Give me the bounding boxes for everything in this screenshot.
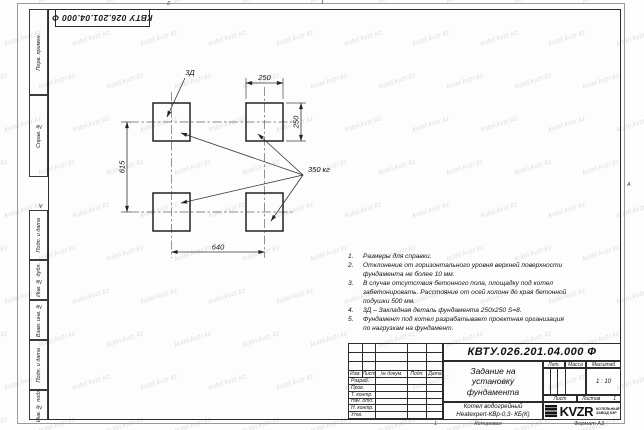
col-header-dokum: № докум. <box>376 371 408 378</box>
mass-cell <box>565 368 586 395</box>
note-number: 1. <box>348 253 363 262</box>
footer-copied: Копировал <box>462 421 514 427</box>
dim-top-250: 250 <box>257 73 271 82</box>
drawing-sheet: kotel.kvzr.kzkotel.kvzr.kzkotel.kvzr.kzk… <box>0 0 644 430</box>
note-number: 3. <box>348 280 363 307</box>
note-text: Размеры для справки. <box>363 253 568 262</box>
col-header-izm: Изм. <box>349 371 363 378</box>
role-label-razrab: Разраб. <box>349 378 376 385</box>
notes-list: 1.Размеры для справки. 2.Отклонение от г… <box>348 253 568 334</box>
role-label-utv: Утв. <box>349 412 376 419</box>
note-text: 3Д – Закладная деталь фундамента 250х250… <box>363 307 568 316</box>
dim-left-615: 615 <box>118 160 127 173</box>
lit-header: Лит. <box>543 361 565 368</box>
kvzr-logo-subtext: КОТЕЛЬНЫЙ ЗАВОД КЗР <box>596 407 619 416</box>
dim-bottom-640: 640 <box>212 243 225 252</box>
designation-cell: КВТУ.026.201.04.000 Ф <box>443 343 621 361</box>
load-label-350kg: 350 кг <box>308 165 330 174</box>
footer-format: Формат А3 <box>563 421 615 427</box>
note-text: Отклонение от горизонтального уровня вер… <box>363 262 568 280</box>
role-label-tkontr: Т. контр. <box>349 392 376 399</box>
col-header-data: Дата <box>427 371 444 378</box>
sheet-label-cell: Лист <box>543 395 577 402</box>
note-item: 3.В случае отсутствия бетонного пола, пл… <box>348 280 568 307</box>
note-number: 2. <box>348 262 363 280</box>
col-header-list: Лист <box>363 371 376 378</box>
note-number: 5. <box>348 316 363 334</box>
extension-lines <box>121 78 306 212</box>
doc-title-cell: Задание на установку фундамента <box>443 361 543 402</box>
kvzr-logo-text: KVZR <box>560 404 593 419</box>
note-item: 1.Размеры для справки. <box>348 253 568 262</box>
kvzr-logo-sub2: ЗАВОД КЗР <box>596 411 619 415</box>
scale-value-cell: 1 : 10 <box>586 368 621 395</box>
note-number: 4. <box>348 307 363 316</box>
title-block-signature-table: Изм. Лист № докум. Подп. Дата Разраб. Пр… <box>348 343 443 420</box>
role-label-nkontr: Н. контр. <box>349 405 376 412</box>
product-name-line1: Котел водогрейный <box>456 403 529 411</box>
role-label-nachotd: Нач. отд. <box>349 399 376 406</box>
centerlines <box>130 87 293 258</box>
note-item: 4.3Д – Закладная деталь фундамента 250х2… <box>348 307 568 316</box>
scale-header: Масштаб <box>586 361 621 368</box>
sheets-value: 1 <box>613 396 616 402</box>
note-item: 2.Отклонение от горизонтального уровня в… <box>348 262 568 280</box>
kvzr-logo-icon <box>545 405 557 417</box>
company-logo-cell: KVZR КОТЕЛЬНЫЙ ЗАВОД КЗР <box>543 402 621 420</box>
sheets-cell: Листов 1 <box>577 395 621 402</box>
mass-header: Масса <box>565 361 586 368</box>
note-text: В случае отсутствия бетонного пола, площ… <box>363 280 568 307</box>
note-item: 5.Фундамент под котел разрабатывает прое… <box>348 316 568 334</box>
note-text: Фундамент под котел разрабатывает проект… <box>363 316 568 334</box>
sheets-label: Листов <box>582 396 600 402</box>
detail-label-3d: 3Д <box>185 68 195 77</box>
col-header-podp: Подп. <box>408 371 427 378</box>
product-name-line2: Heatexpert-КВр-0,3- КБ(К) <box>456 411 529 419</box>
role-label-prov: Пров. <box>349 385 376 392</box>
product-name-cell: Котел водогрейный Heatexpert-КВр-0,3- КБ… <box>443 402 543 420</box>
dim-right-250: 250 <box>292 115 301 129</box>
